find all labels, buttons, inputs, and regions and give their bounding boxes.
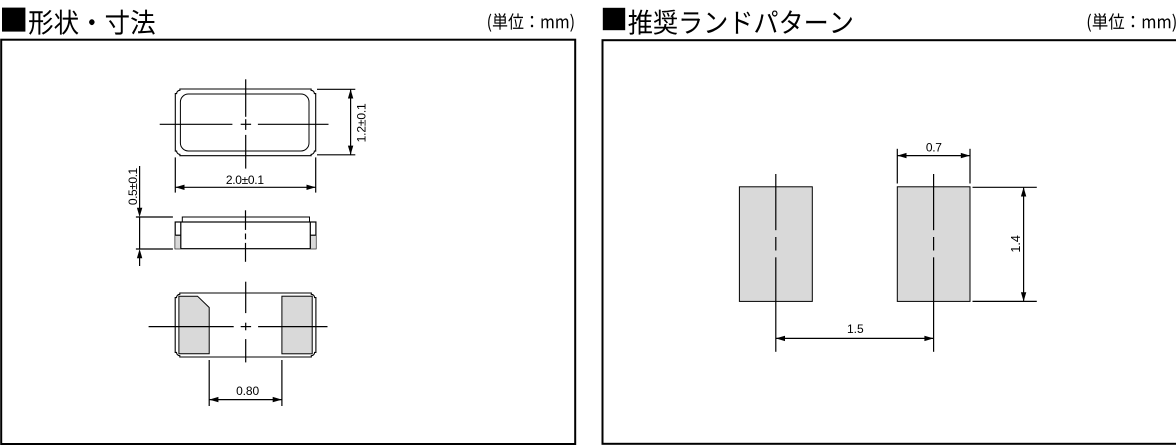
svg-text:1.2±0.1: 1.2±0.1 xyxy=(354,103,368,142)
svg-text:0.80: 0.80 xyxy=(236,384,259,398)
svg-text:1.4: 1.4 xyxy=(1009,235,1023,252)
svg-text:1.5: 1.5 xyxy=(847,322,864,336)
svg-text:2.0±0.1: 2.0±0.1 xyxy=(226,173,264,187)
svg-text:0.5±0.1: 0.5±0.1 xyxy=(126,168,140,206)
svg-text:0.7: 0.7 xyxy=(926,140,942,154)
